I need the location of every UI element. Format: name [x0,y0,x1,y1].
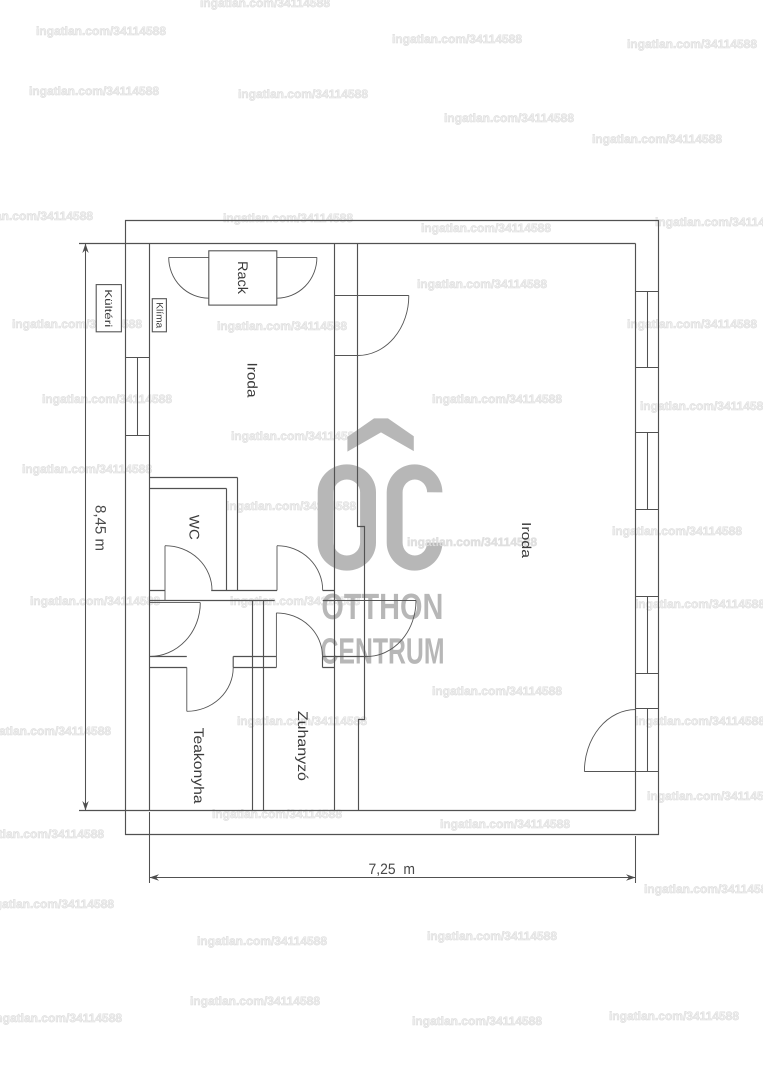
svg-text:ingatlan.com/34114588: ingatlan.com/34114588 [212,807,342,821]
svg-text:ingatlan.com/34114588: ingatlan.com/34114588 [22,462,152,476]
svg-text:ingatlan.com/34114588: ingatlan.com/34114588 [432,684,562,698]
svg-text:ingatlan.com/34114588: ingatlan.com/34114588 [440,817,570,831]
svg-text:ingatlan.com/34114588: ingatlan.com/34114588 [12,317,142,331]
svg-text:8,45 m: 8,45 m [92,505,109,551]
svg-text:WC: WC [187,515,203,540]
svg-text:Rack: Rack [235,261,251,295]
svg-text:ingatlan.com/34114588: ingatlan.com/34114588 [644,882,763,896]
svg-text:ingatlan.com/34114588: ingatlan.com/34114588 [609,1009,739,1023]
svg-text:ingatlan.com/34114588: ingatlan.com/34114588 [612,524,742,538]
svg-text:ingatlan.com/34114588: ingatlan.com/34114588 [217,319,347,333]
svg-text:ingatlan.com/34114588: ingatlan.com/34114588 [0,827,104,841]
svg-text:ingatlan.com/34114588: ingatlan.com/34114588 [231,429,361,443]
svg-text:ingatlan.com/34114588: ingatlan.com/34114588 [412,1014,542,1028]
svg-text:ingatlan.com/34114588: ingatlan.com/34114588 [392,32,522,46]
svg-text:ingatlan.com/34114588: ingatlan.com/34114588 [627,37,757,51]
svg-text:Teakonyha: Teakonyha [191,728,207,804]
svg-text:ingatlan.com/34114588: ingatlan.com/34114588 [30,594,160,608]
svg-text:ingatlan.com/34114588: ingatlan.com/34114588 [427,929,557,943]
svg-text:ingatlan.com/34114588: ingatlan.com/34114588 [42,392,172,406]
svg-text:ingatlan.com/34114588: ingatlan.com/34114588 [407,535,537,549]
svg-text:ingatlan.com/34114588: ingatlan.com/34114588 [417,277,547,291]
svg-text:ingatlan.com/34114588: ingatlan.com/34114588 [223,211,353,225]
svg-text:Zuhanyzó: Zuhanyzó [295,711,311,781]
svg-text:Iroda: Iroda [245,363,261,398]
svg-text:ingatlan.com/34114588: ingatlan.com/34114588 [627,317,757,331]
svg-text:ingatlan.com/34114588: ingatlan.com/34114588 [200,0,330,10]
svg-text:ingatlan.com/34114588: ingatlan.com/34114588 [0,897,114,911]
svg-text:Klíma: Klíma [154,302,165,329]
svg-text:ingatlan.com/34114588: ingatlan.com/34114588 [421,221,551,235]
svg-text:ingatlan.com/34114588: ingatlan.com/34114588 [635,714,763,728]
svg-text:Kültéri: Kültéri [102,289,113,327]
svg-text:ingatlan.com/34114588: ingatlan.com/34114588 [655,215,763,229]
svg-text:ingatlan.com/34114588: ingatlan.com/34114588 [0,724,111,738]
svg-text:Iroda: Iroda [519,522,534,559]
svg-text:ingatlan.com/34114588: ingatlan.com/34114588 [0,1011,122,1025]
svg-text:ingatlan.com/34114588: ingatlan.com/34114588 [197,934,327,948]
svg-text:ingatlan.com/34114588: ingatlan.com/34114588 [0,209,93,223]
svg-text:ingatlan.com/34114588: ingatlan.com/34114588 [36,24,166,38]
svg-text:7,25 m: 7,25 m [369,861,416,878]
svg-text:ingatlan.com/34114588: ingatlan.com/34114588 [29,84,159,98]
svg-text:ingatlan.com/34114588: ingatlan.com/34114588 [226,499,356,513]
svg-text:ingatlan.com/34114588: ingatlan.com/34114588 [238,87,368,101]
svg-text:ingatlan.com/34114588: ingatlan.com/34114588 [647,789,763,803]
svg-text:ingatlan.com/34114588: ingatlan.com/34114588 [592,132,722,146]
svg-text:ingatlan.com/34114588: ingatlan.com/34114588 [635,597,763,611]
svg-text:ingatlan.com/34114588: ingatlan.com/34114588 [444,111,574,125]
svg-text:ingatlan.com/34114588: ingatlan.com/34114588 [190,994,320,1008]
svg-text:ingatlan.com/34114588: ingatlan.com/34114588 [432,392,562,406]
svg-text:OTTHON: OTTHON [321,586,443,627]
svg-text:CENTRUM: CENTRUM [321,631,445,672]
